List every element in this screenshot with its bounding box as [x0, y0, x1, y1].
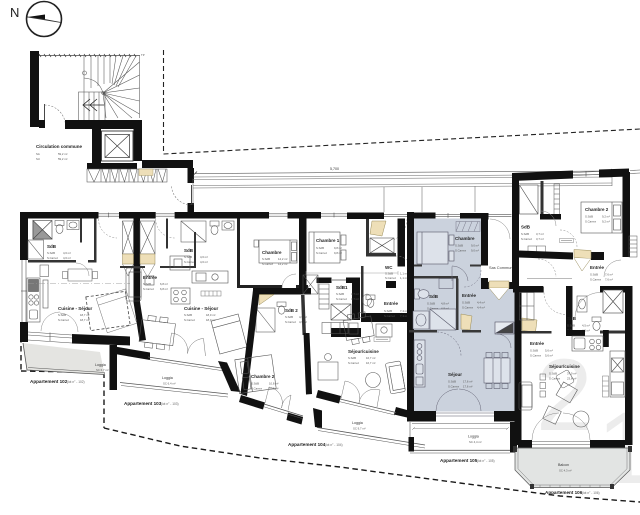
svg-text:14,2 m²: 14,2 m² — [278, 257, 288, 261]
svg-text:S.SdB: S.SdB — [143, 282, 151, 286]
svg-text:SdB: SdB — [429, 294, 439, 299]
svg-text:16,7 m²: 16,7 m² — [366, 361, 376, 365]
svg-text:(lot n° - 106): (lot n° - 106) — [582, 491, 600, 495]
svg-text:1,1 m²: 1,1 m² — [400, 272, 408, 276]
svg-text:S.Carrez: S.Carrez — [585, 220, 597, 224]
svg-text:S.Carrez: S.Carrez — [285, 320, 297, 324]
svg-text:S.SdB: S.SdB — [58, 313, 66, 317]
svg-text:Entrée: Entrée — [384, 301, 399, 306]
svg-text:S.Carrez: S.Carrez — [262, 262, 274, 266]
svg-text:S.Carrez: S.Carrez — [521, 237, 533, 241]
svg-text:59,2 m²: 59,2 m² — [58, 152, 68, 156]
svg-text:(lot n° - 105): (lot n° - 105) — [477, 459, 495, 463]
svg-text:Appartement 102: Appartement 102 — [30, 379, 68, 384]
svg-text:Séjour: Séjour — [448, 372, 462, 377]
svg-text:SC 9,7 m²: SC 9,7 m² — [353, 427, 366, 431]
svg-text:S.Carrez: S.Carrez — [316, 251, 328, 255]
svg-text:Loggia: Loggia — [162, 376, 173, 380]
svg-text:7,6 m²: 7,6 m² — [605, 273, 613, 277]
svg-text:S.Carrez: S.Carrez — [251, 387, 263, 391]
svg-text:S.SdB: S.SdB — [262, 257, 270, 261]
svg-text:18,0 m²: 18,0 m² — [206, 318, 216, 322]
svg-text:S.SdB: S.SdB — [427, 302, 435, 306]
svg-text:9,0 m²: 9,0 m² — [471, 249, 479, 253]
svg-text:S.SdB: S.SdB — [530, 349, 538, 353]
svg-text:16,7 m²: 16,7 m² — [366, 356, 376, 360]
svg-text:7,4 m²: 7,4 m² — [400, 309, 408, 313]
svg-text:9,2 m²: 9,2 m² — [602, 215, 610, 219]
svg-text:Chambre 2: Chambre 2 — [251, 374, 275, 379]
svg-text:Balcon: Balcon — [558, 463, 569, 467]
svg-text:4,4 m²: 4,4 m² — [477, 301, 485, 305]
svg-text:9,2 m²: 9,2 m² — [602, 220, 610, 224]
svg-text:S.Carrez: S.Carrez — [385, 276, 397, 280]
svg-text:S.SdB: S.SdB — [521, 232, 529, 236]
svg-text:SC 6,7 m²: SC 6,7 m² — [96, 368, 109, 372]
svg-text:S.Carrez: S.Carrez — [462, 306, 474, 310]
svg-text:S.Carrez: S.Carrez — [549, 377, 561, 381]
svg-text:S.SdB: S.SdB — [448, 380, 456, 384]
svg-text:Appartement 106: Appartement 106 — [545, 490, 583, 495]
svg-text:SdB: SdB — [184, 248, 194, 253]
svg-text:S.Carrez: S.Carrez — [143, 287, 155, 291]
svg-text:(lot n° - 104): (lot n° - 104) — [325, 443, 343, 447]
svg-text:4,6 m²: 4,6 m² — [200, 260, 208, 264]
svg-text:S.Carrez: S.Carrez — [184, 318, 196, 322]
svg-text:S.Carrez: S.Carrez — [590, 278, 602, 282]
svg-text:TP: TP — [141, 53, 145, 57]
svg-text:S.SdB: S.SdB — [348, 356, 356, 360]
svg-text:S.SdB: S.SdB — [590, 273, 598, 277]
svg-text:4,6 m²: 4,6 m² — [63, 256, 71, 260]
svg-text:Loggia: Loggia — [468, 435, 479, 439]
svg-text:4,4 m²: 4,4 m² — [477, 306, 485, 310]
svg-text:9,8 m²: 9,8 m² — [334, 246, 342, 250]
svg-text:5,6 m²: 5,6 m² — [545, 354, 553, 358]
svg-text:18,0 m²: 18,0 m² — [206, 313, 216, 317]
svg-text:Circulation commune: Circulation commune — [36, 144, 83, 149]
svg-text:59,2 m²: 59,2 m² — [58, 157, 68, 161]
svg-text:Sas Commun: Sas Commun — [489, 265, 513, 270]
svg-text:SdB: SdB — [567, 316, 577, 321]
svg-text:Chambre 1: Chambre 1 — [316, 238, 340, 243]
svg-text:5,700: 5,700 — [330, 167, 339, 171]
svg-text:S.SdB: S.SdB — [462, 301, 470, 305]
svg-text:Cuisine - Séjour: Cuisine - Séjour — [184, 306, 219, 311]
svg-text:Appartement 103: Appartement 103 — [124, 401, 162, 406]
svg-text:Appartement 105: Appartement 105 — [440, 458, 478, 463]
svg-text:Séjour/cuisine: Séjour/cuisine — [348, 349, 379, 354]
svg-text:Appartement 104: Appartement 104 — [288, 442, 326, 447]
svg-text:10,8 m²: 10,8 m² — [269, 382, 279, 386]
svg-text:S.SdB: S.SdB — [336, 292, 344, 296]
svg-text:Entrée: Entrée — [590, 265, 605, 270]
svg-text:N: N — [10, 5, 19, 20]
svg-text:SC 6,4 m²: SC 6,4 m² — [163, 382, 176, 386]
svg-text:S.SdB: S.SdB — [585, 215, 593, 219]
svg-text:SdB: SdB — [521, 225, 531, 230]
svg-text:1,1 m²: 1,1 m² — [400, 276, 408, 280]
svg-text:37,0 m²: 37,0 m² — [567, 372, 577, 376]
svg-text:4,6 m²: 4,6 m² — [200, 255, 208, 259]
svg-text:(lot n° - 103): (lot n° - 103) — [161, 402, 179, 406]
svg-text:S.Carrez: S.Carrez — [348, 361, 360, 365]
svg-text:S.SdB: S.SdB — [455, 244, 463, 248]
svg-text:3,7 m²: 3,7 m² — [351, 297, 359, 301]
svg-text:Chambre: Chambre — [455, 236, 475, 241]
svg-text:18,7 m²: 18,7 m² — [80, 318, 90, 322]
svg-text:S.SdB: S.SdB — [567, 324, 575, 328]
svg-text:17,6 m²: 17,6 m² — [463, 380, 473, 384]
svg-text:S.Carrez: S.Carrez — [58, 318, 70, 322]
svg-text:SdB: SdB — [47, 244, 57, 249]
svg-text:SdB1: SdB1 — [336, 285, 348, 290]
svg-text:5,6 m²: 5,6 m² — [545, 349, 553, 353]
svg-text:S.SdB: S.SdB — [184, 255, 192, 259]
svg-text:SdB 2: SdB 2 — [285, 308, 298, 313]
svg-text:S.Carrez: S.Carrez — [384, 314, 396, 318]
svg-text:Entrée: Entrée — [530, 341, 545, 346]
svg-text:Chambre: Chambre — [262, 250, 282, 255]
svg-text:3,7 m²: 3,7 m² — [351, 292, 359, 296]
svg-text:4,6 m²: 4,6 m² — [63, 251, 71, 255]
svg-text:S.SdB: S.SdB — [251, 382, 259, 386]
svg-text:9,0 m²: 9,0 m² — [471, 244, 479, 248]
svg-text:S.SdB: S.SdB — [384, 309, 392, 313]
svg-text:S.SdB: S.SdB — [385, 272, 393, 276]
svg-text:Loggia: Loggia — [95, 363, 106, 367]
svg-text:3,7 m²: 3,7 m² — [536, 237, 544, 241]
svg-text:7,6 m²: 7,6 m² — [605, 278, 613, 282]
svg-text:SC 4,4 m²: SC 4,4 m² — [469, 440, 482, 444]
svg-text:S.SdB: S.SdB — [316, 246, 324, 250]
svg-text:S.Carrez: S.Carrez — [455, 249, 467, 253]
svg-text:S.SdB: S.SdB — [549, 372, 557, 376]
svg-text:4,5 m²: 4,5 m² — [582, 324, 590, 328]
svg-text:S.SdB: S.SdB — [285, 315, 293, 319]
svg-text:SC 4,3 m²: SC 4,3 m² — [559, 469, 572, 473]
svg-text:Entrée: Entrée — [462, 293, 477, 298]
svg-text:WC: WC — [385, 265, 393, 270]
svg-text:7,4 m²: 7,4 m² — [400, 314, 408, 318]
svg-text:S.Carrez: S.Carrez — [448, 385, 460, 389]
svg-text:S.SdB: S.SdB — [184, 313, 192, 317]
svg-text:4,8 m²: 4,8 m² — [441, 302, 449, 306]
svg-text:17,6 m²: 17,6 m² — [463, 385, 473, 389]
svg-text:6,8 m²: 6,8 m² — [160, 287, 168, 291]
svg-text:Séjour/cuisine: Séjour/cuisine — [549, 364, 580, 369]
svg-text:3,7 m²: 3,7 m² — [536, 232, 544, 236]
svg-text:S.Carrez: S.Carrez — [336, 297, 348, 301]
svg-text:6,8 m²: 6,8 m² — [160, 282, 168, 286]
svg-text:SA: SA — [36, 152, 40, 156]
svg-text:Loggia: Loggia — [352, 421, 363, 425]
svg-text:S.Carrez: S.Carrez — [47, 256, 59, 260]
svg-text:S.SdB: S.SdB — [47, 251, 55, 255]
svg-text:SU: SU — [36, 157, 40, 161]
svg-text:Chambre 2: Chambre 2 — [585, 207, 609, 212]
svg-text:S.Carrez: S.Carrez — [530, 354, 542, 358]
svg-text:14,2 m²: 14,2 m² — [278, 262, 288, 266]
svg-text:(lot n° - 102): (lot n° - 102) — [67, 380, 85, 384]
